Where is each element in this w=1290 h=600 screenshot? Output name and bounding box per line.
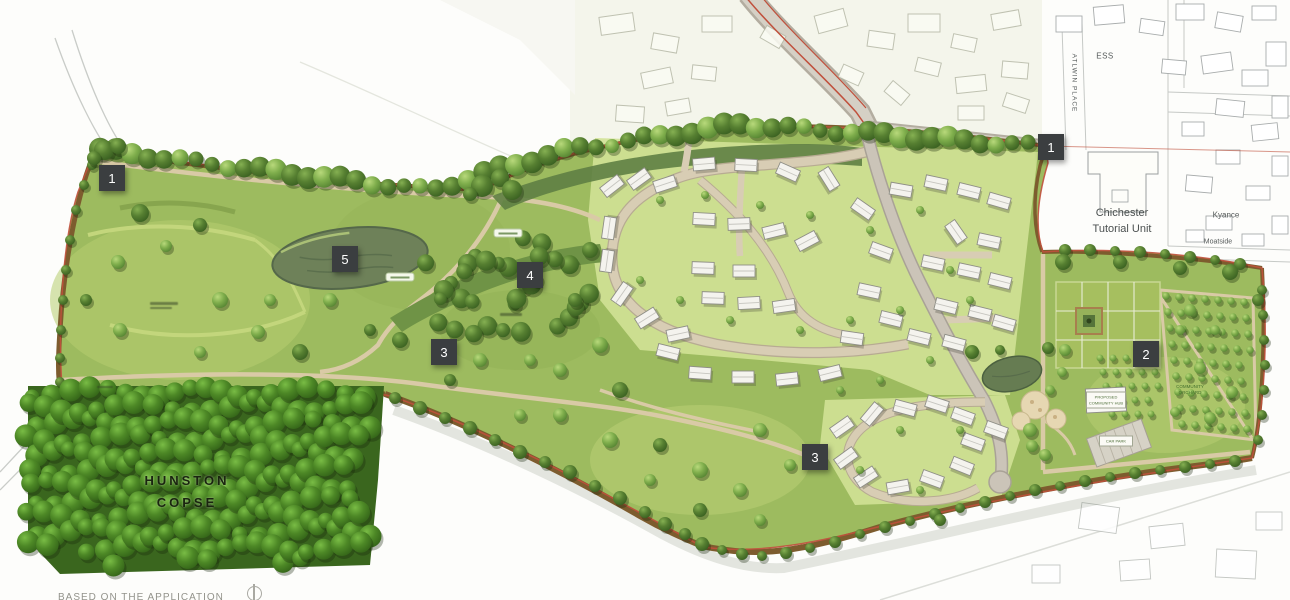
key-marker-1-east: 1	[1038, 134, 1064, 160]
masterplan-canvas: HUNSTON COPSE Chichester Tutorial Unit K…	[0, 0, 1290, 600]
site-plan-illustration	[0, 0, 1290, 600]
key-marker-4: 4	[517, 262, 543, 288]
key-marker-3-south: 3	[802, 444, 828, 470]
community-hub-label: PROPOSED COMMUNITY HUB	[1086, 392, 1126, 409]
small-map-tag	[386, 273, 415, 282]
faint-map-text	[150, 307, 172, 309]
small-map-tag	[494, 229, 523, 238]
orchard-label: COMMUNITY ORCHARD	[1176, 384, 1204, 396]
faint-map-text	[97, 386, 113, 388]
key-marker-3-west: 3	[431, 339, 457, 365]
key-marker-2: 2	[1133, 341, 1159, 367]
key-marker-5: 5	[332, 246, 358, 272]
key-marker-1-west: 1	[99, 165, 125, 191]
drawing-caption: BASED ON THE APPLICATION	[58, 592, 224, 600]
faint-map-text	[500, 313, 522, 316]
faint-map-text	[150, 302, 178, 305]
north-arrow-icon	[247, 586, 262, 600]
car-park-label: CAR PARK	[1099, 436, 1133, 447]
